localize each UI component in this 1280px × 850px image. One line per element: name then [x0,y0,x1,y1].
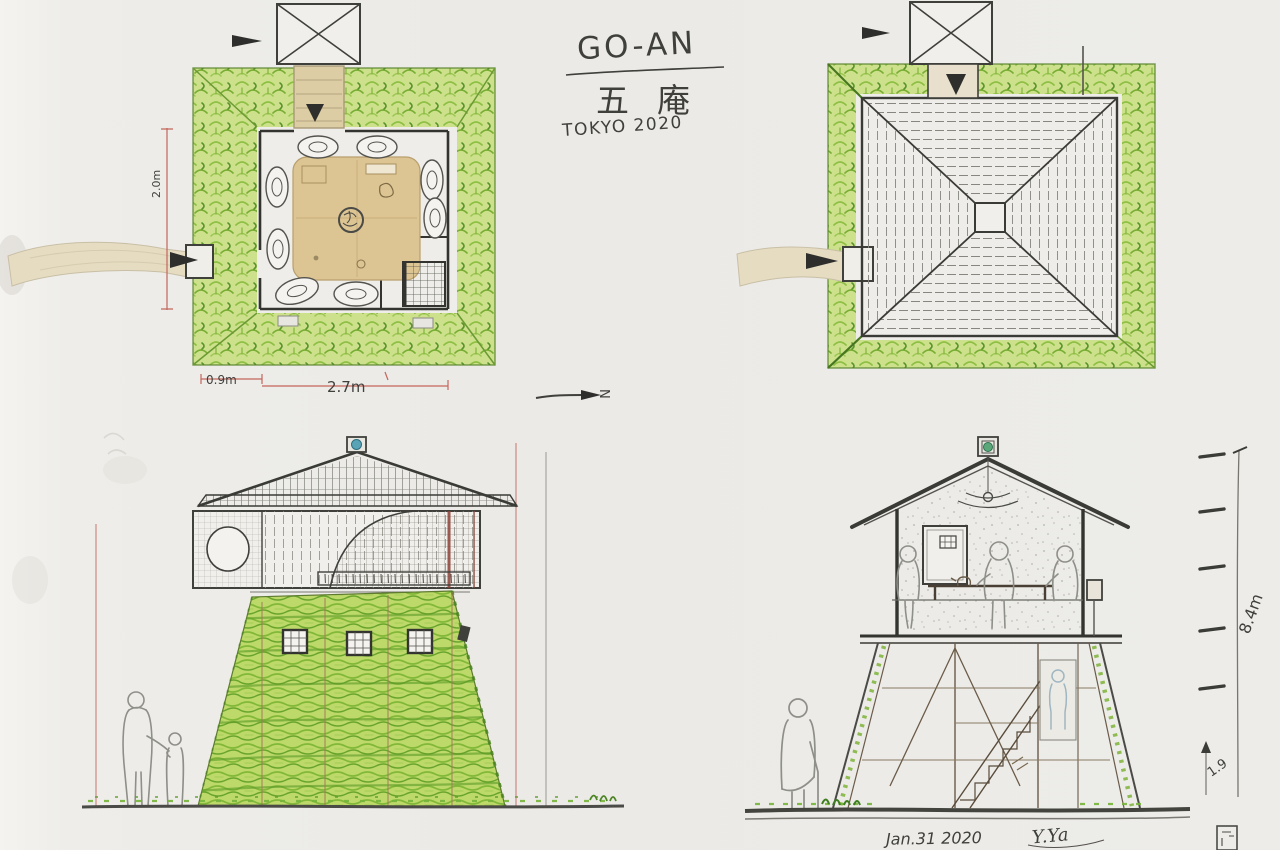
section-finial-glass [984,443,993,452]
section-dim-lower-height: 1.9 [1205,756,1231,780]
roof-plan-drawing [737,2,1155,368]
seal-stamp [1217,826,1237,850]
plan-top-arrow [232,35,262,47]
plan-dim-bottom-main: 2.7m [327,378,365,396]
plan-table [293,157,420,280]
roofplan-center-skylight [975,203,1005,232]
section-dim-total-height: 8.4m [1235,591,1267,636]
plan-dim-left-vertical: 2.0m [150,170,163,198]
elevation-finial-glass [352,440,362,450]
date: Jan.31 2020 [883,828,982,849]
plan-dim-bottom-left: 0.9m [206,373,237,387]
plan-shaft [294,66,344,128]
elevation-mound [198,591,505,806]
elevation-drawing [82,437,624,808]
plan-stairs [403,262,445,306]
sketch-sheet: GO-AN 五庵 TOKYO 2020 [0,0,1280,850]
footer: Jan.31 2020 Y.Ya [883,824,1237,850]
elevation-windows [283,630,432,655]
elevation-moon-window [207,527,249,571]
floor-plan-drawing: 2.0m 0.9m 2.7m [8,4,495,396]
roofplan-top-arrow [862,27,890,39]
section-lantern [1087,580,1102,600]
elevation-ground [82,806,624,807]
section-dimension-lines: 8.4m 1.9 [1200,447,1267,797]
section-ground [745,809,1190,811]
north-arrow: N [536,389,611,400]
paper-smudges [0,235,147,604]
section-substructure [833,643,1140,808]
elevation-railing [318,572,470,585]
project-location-year: TOKYO 2020 [561,113,684,141]
project-title: GO-AN [576,25,697,67]
section-person-standing [781,699,818,808]
elevation-people [123,692,183,806]
drawing-canvas: GO-AN 五庵 TOKYO 2020 [0,0,1280,850]
title-underline [566,67,724,75]
section-door [923,526,967,584]
title-block: GO-AN 五庵 TOKYO 2020 [561,25,724,141]
signature: Y.Ya [1031,824,1069,848]
section-drawing [745,437,1190,819]
north-label: N [596,389,611,399]
